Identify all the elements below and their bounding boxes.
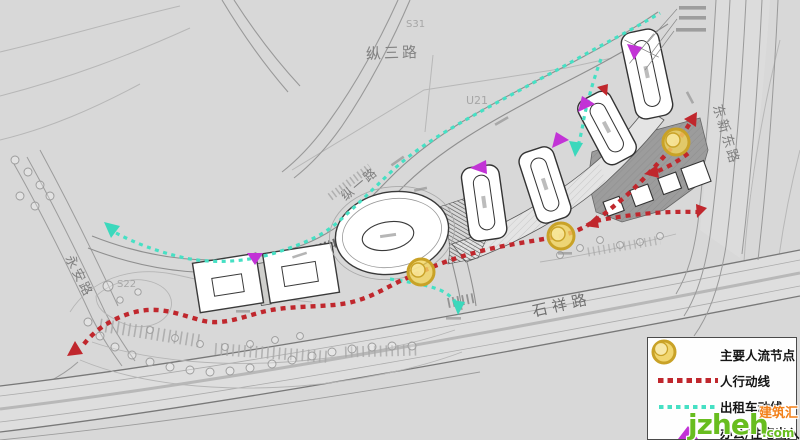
legend-label-node: 主要人流节点 <box>720 345 795 364</box>
legend-label-entrance: 办公/住宅出入口 <box>720 423 800 440</box>
legend: 主要人流节点 人行动线 出租车动线 办公/住宅出入口 <box>647 337 797 440</box>
legend-row-taxi: 出租车动线 <box>656 397 796 416</box>
parcel-label-s22: S22 <box>117 280 136 290</box>
pedestrian-line-icon <box>656 378 720 383</box>
legend-label-taxi: 出租车动线 <box>720 397 783 416</box>
legend-row-entrance: 办公/住宅出入口 <box>656 423 796 440</box>
parcel-label-u21: U21 <box>466 95 488 106</box>
flow-node <box>408 259 434 285</box>
flow-node <box>548 223 574 249</box>
road-label-zongsan: 纵三路 <box>366 45 421 62</box>
legend-label-pedestrian: 人行动线 <box>720 371 770 390</box>
entrance-arrow-icon <box>656 426 720 439</box>
legend-row-pedestrian: 人行动线 <box>656 371 796 390</box>
taxi-line-icon <box>656 405 720 409</box>
site-plan: 纵三路 纵一路 石祥路 东新东路 永安路 S31 U21 S22 主要人流节点 … <box>0 0 800 440</box>
parcel-label-s31: S31 <box>406 20 425 30</box>
legend-row-node: 主要人流节点 <box>656 345 796 364</box>
flow-node <box>663 129 689 155</box>
